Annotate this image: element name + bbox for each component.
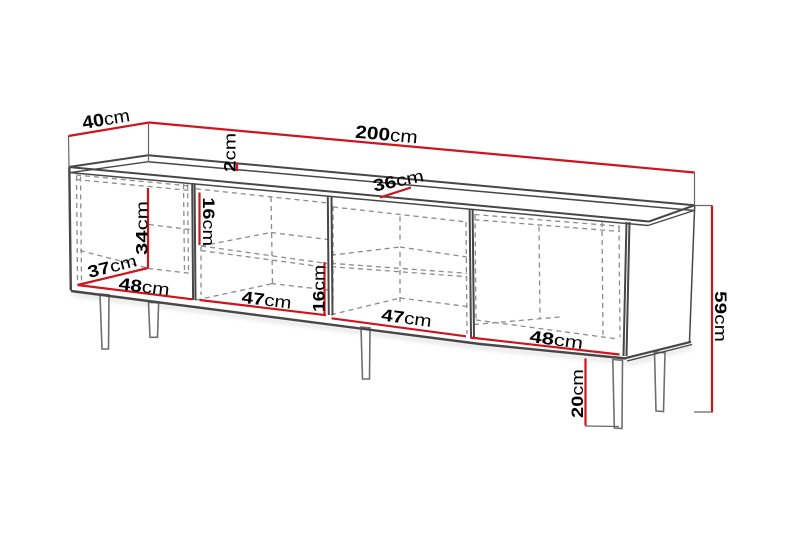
svg-text:20cm: 20cm [568, 369, 587, 418]
svg-text:16cm: 16cm [310, 265, 329, 312]
svg-text:59cm: 59cm [711, 291, 730, 342]
svg-text:34cm: 34cm [133, 201, 152, 255]
svg-text:2cm: 2cm [221, 133, 240, 172]
svg-text:16cm: 16cm [199, 197, 218, 246]
